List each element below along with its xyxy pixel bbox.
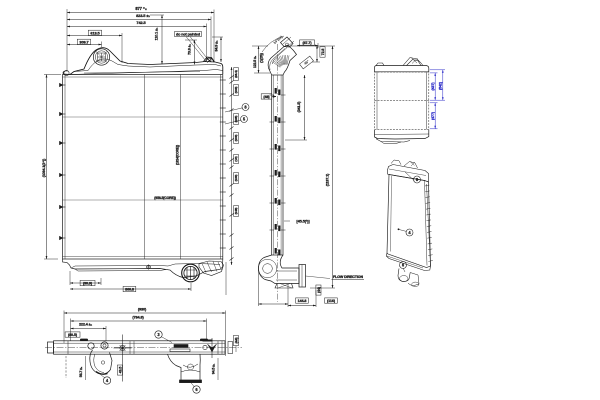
svg-text:(87.7): (87.7) (302, 41, 312, 45)
svg-text:823.5 ±₁: 823.5 ±₁ (136, 13, 150, 18)
svg-text:(10): (10) (234, 156, 238, 161)
svg-text:(96.4): (96.4) (234, 70, 238, 78)
svg-text:(148): (148) (234, 208, 238, 215)
svg-text:84.9 ±₁: 84.9 ±₁ (215, 40, 219, 52)
svg-text:144.8: 144.8 (298, 299, 307, 303)
svg-text:222.4 ±₂: 222.4 ±₂ (79, 323, 93, 327)
svg-text:110.1 ±₁: 110.1 ±₁ (155, 27, 159, 40)
svg-text:877 ⁺₂: 877 ⁺₂ (135, 6, 147, 11)
svg-text:(100): (100) (234, 135, 238, 142)
svg-text:72.8: 72.8 (321, 49, 325, 56)
svg-text:[45.5(¹)]: [45.5(¹)] (296, 218, 310, 223)
svg-text:(130): (130) (234, 175, 238, 182)
svg-text:866.8: 866.8 (125, 287, 134, 291)
svg-text:(48): (48) (263, 95, 270, 99)
svg-text:(341.5): (341.5) (297, 101, 301, 113)
svg-text:(103): (103) (234, 87, 238, 94)
svg-text:742.5: 742.5 (136, 20, 146, 25)
svg-text:FLOW DIRECTION: FLOW DIRECTION (333, 275, 363, 279)
svg-text:(1(26)): (1(26)) (260, 53, 264, 62)
svg-text:(116): (116) (327, 299, 336, 303)
svg-text:(1914(CORE)): (1914(CORE)) (176, 145, 180, 165)
svg-text:(1094.1(2⁺)): (1094.1(2⁺)) (42, 158, 46, 177)
svg-text:(437): (437) (431, 82, 435, 91)
svg-text:(477): (477) (431, 111, 435, 120)
svg-text:(930): (930) (138, 308, 147, 312)
svg-text:(44): (44) (234, 338, 238, 344)
svg-text:(542): (542) (439, 81, 443, 90)
svg-text:73.8 ±₁: 73.8 ±₁ (188, 43, 192, 55)
svg-text:94.5 ±₁: 94.5 ±₁ (212, 363, 216, 374)
svg-text:56.7 ±₁: 56.7 ±₁ (79, 366, 83, 377)
svg-text:do not painted: do not painted (176, 32, 201, 36)
svg-text:(90.9): (90.9) (83, 281, 93, 285)
svg-text:(958.5(CORE)): (958.5(CORE)) (154, 196, 176, 200)
svg-text:309.7: 309.7 (79, 39, 88, 44)
svg-text:43.5: 43.5 (118, 367, 122, 374)
svg-text:(784.8): (784.8) (132, 316, 144, 320)
svg-text:(80.5): (80.5) (68, 333, 78, 337)
svg-text:613.5: 613.5 (90, 30, 100, 35)
svg-text:(44): (44) (317, 287, 321, 293)
svg-text:(1197.1): (1197.1) (326, 173, 330, 186)
svg-text:122.5 ±₁: 122.5 ±₁ (253, 55, 257, 68)
